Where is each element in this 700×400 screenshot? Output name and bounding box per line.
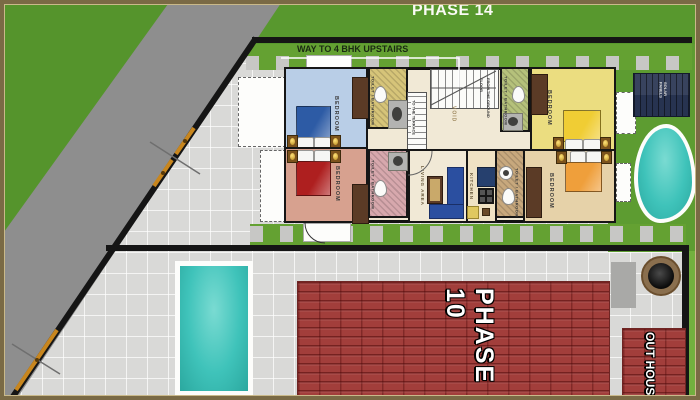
door-swing-arc bbox=[305, 223, 325, 243]
outhouse-label: OUT HOUSE bbox=[642, 332, 656, 400]
door-swing-arc bbox=[408, 151, 432, 175]
gate-hinge bbox=[161, 171, 165, 175]
site-plan: BEDROOM TOILET / BATHROOM TO THE TERRACE… bbox=[0, 0, 700, 400]
gate-swing-line bbox=[150, 142, 200, 174]
gate-hinge bbox=[183, 139, 187, 143]
way-label: WAY TO 4 BHK UPSTAIRS bbox=[297, 44, 408, 54]
phase14-label: PHASE 14 bbox=[412, 2, 493, 20]
phase10-label: PHASE 10 bbox=[440, 288, 498, 400]
entry-path-line bbox=[281, 58, 459, 88]
gate-hinge bbox=[35, 358, 39, 362]
line-overlay bbox=[0, 0, 700, 400]
